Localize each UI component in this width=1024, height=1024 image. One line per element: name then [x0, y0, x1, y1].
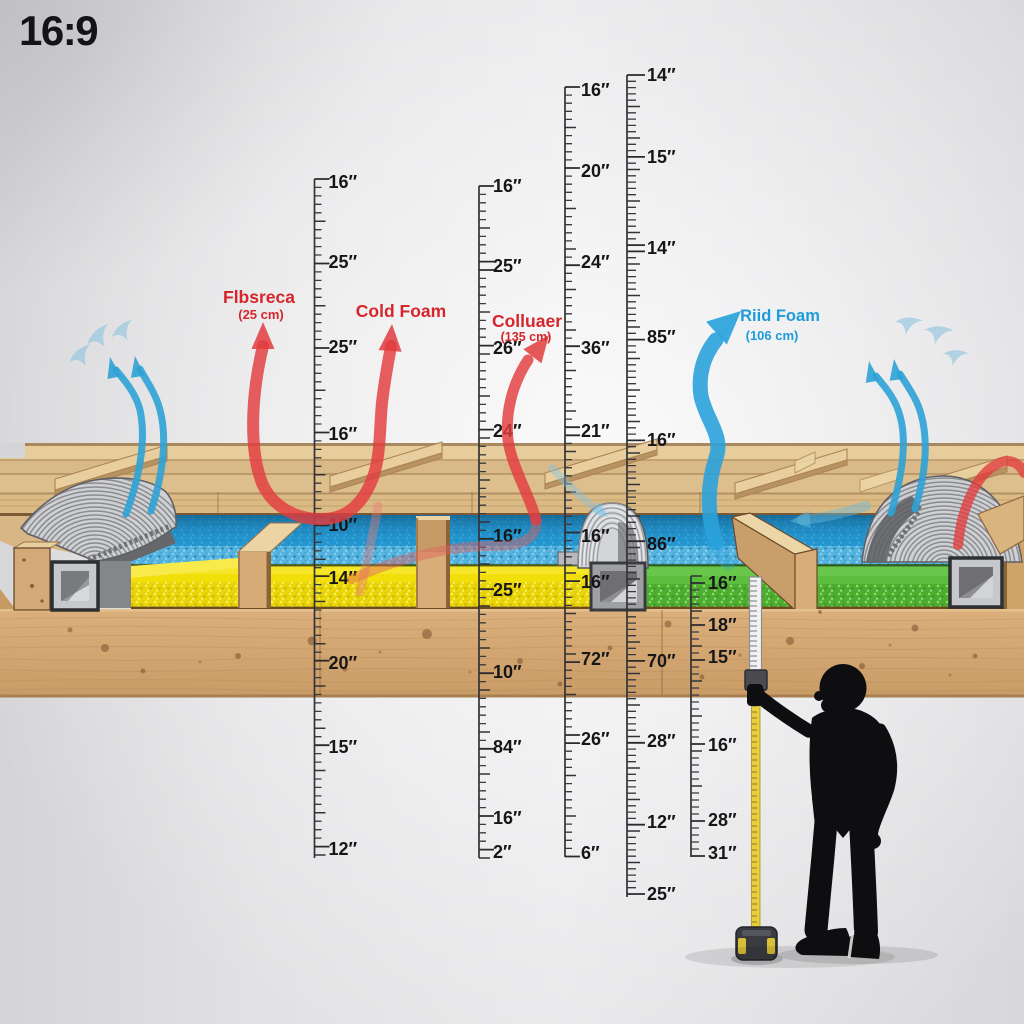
svg-text:16″: 16″ — [647, 430, 676, 450]
svg-text:Flbsreca: Flbsreca — [223, 287, 295, 307]
svg-text:(25 cm): (25 cm) — [238, 307, 284, 322]
svg-text:36″: 36″ — [581, 338, 610, 358]
svg-text:Colluaer: Colluaer — [492, 311, 562, 331]
svg-text:21″: 21″ — [581, 421, 610, 441]
svg-text:16:9: 16:9 — [19, 7, 97, 54]
svg-text:86″: 86″ — [647, 534, 676, 554]
svg-text:15″: 15″ — [708, 647, 737, 667]
svg-text:28″: 28″ — [708, 810, 737, 830]
svg-text:16″: 16″ — [329, 172, 358, 192]
svg-text:20″: 20″ — [329, 653, 358, 673]
svg-text:16″: 16″ — [708, 735, 737, 755]
svg-text:12″: 12″ — [329, 839, 358, 859]
svg-text:16″: 16″ — [493, 176, 522, 196]
svg-text:(106 cm): (106 cm) — [746, 328, 799, 343]
svg-text:84″: 84″ — [493, 737, 522, 757]
svg-text:10″: 10″ — [493, 662, 522, 682]
svg-text:Riid Foam: Riid Foam — [740, 307, 820, 325]
svg-text:25″: 25″ — [647, 884, 676, 904]
svg-text:25″: 25″ — [329, 337, 358, 357]
svg-text:15″: 15″ — [329, 737, 358, 757]
svg-text:16″: 16″ — [581, 526, 610, 546]
svg-text:25″: 25″ — [493, 580, 522, 600]
svg-text:20″: 20″ — [581, 161, 610, 181]
svg-text:2″: 2″ — [493, 842, 512, 862]
svg-text:14″: 14″ — [647, 65, 676, 85]
svg-text:24″: 24″ — [581, 252, 610, 272]
svg-text:16″: 16″ — [581, 572, 610, 592]
svg-text:70″: 70″ — [647, 651, 676, 671]
svg-text:16″: 16″ — [329, 424, 358, 444]
svg-text:26″: 26″ — [581, 729, 610, 749]
svg-text:15″: 15″ — [647, 147, 676, 167]
svg-text:14″: 14″ — [647, 238, 676, 258]
svg-text:16″: 16″ — [493, 808, 522, 828]
svg-text:28″: 28″ — [647, 731, 676, 751]
svg-text:31″: 31″ — [708, 843, 737, 863]
svg-text:12″: 12″ — [647, 812, 676, 832]
svg-text:(135 cm): (135 cm) — [501, 330, 552, 344]
svg-text:18″: 18″ — [708, 615, 737, 635]
svg-text:16″: 16″ — [708, 573, 737, 593]
svg-text:6″: 6″ — [581, 843, 600, 863]
svg-text:72″: 72″ — [581, 649, 610, 669]
svg-text:16″: 16″ — [581, 80, 610, 100]
svg-text:Cold Foam: Cold Foam — [356, 301, 446, 321]
svg-text:85″: 85″ — [647, 327, 676, 347]
svg-text:25″: 25″ — [329, 252, 358, 272]
svg-text:25″: 25″ — [493, 256, 522, 276]
